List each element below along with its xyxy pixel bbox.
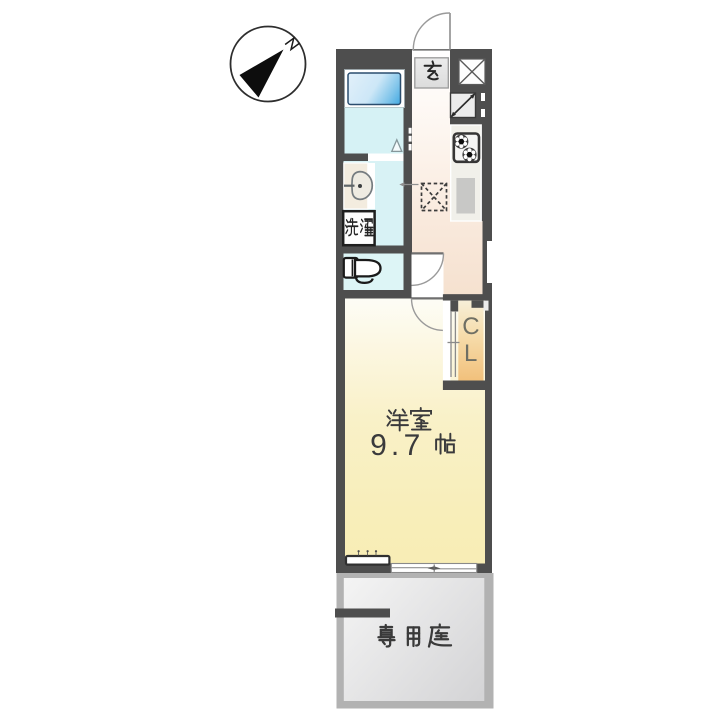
svg-text:C: C	[462, 313, 479, 340]
svg-text:.: .	[391, 429, 399, 462]
svg-text:9: 9	[370, 429, 387, 462]
svg-text:L: L	[464, 340, 477, 367]
svg-text:7: 7	[404, 429, 421, 462]
